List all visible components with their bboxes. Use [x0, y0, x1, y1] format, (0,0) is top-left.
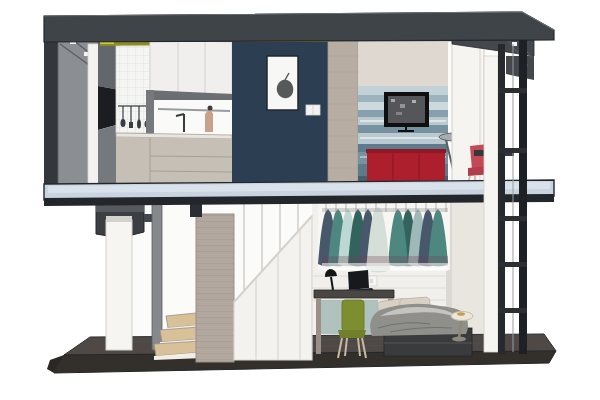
chair-seat	[338, 330, 366, 338]
rail-shadow	[322, 208, 448, 212]
utensil-head	[121, 119, 126, 127]
column-texture	[196, 214, 234, 362]
stair-column	[190, 204, 234, 362]
partition-column	[328, 40, 358, 198]
figure-top	[208, 106, 213, 111]
frame-rung	[498, 308, 527, 313]
mural-streak	[360, 137, 446, 139]
sideboard-top	[366, 149, 446, 153]
navy-accent-wall	[232, 42, 328, 200]
tall-white-panel	[484, 56, 498, 352]
kitchen-back-wall	[154, 100, 232, 133]
left-wall-panel	[106, 220, 132, 350]
upper-wall-band	[358, 42, 448, 88]
wall-edge	[44, 16, 58, 202]
column-top-bracket	[190, 204, 202, 217]
kitchen	[116, 40, 232, 196]
tv-speckle	[400, 104, 405, 108]
apartment-section-svg	[0, 0, 600, 400]
tile-backsplash	[116, 46, 150, 133]
frame-rung	[498, 148, 527, 153]
tv	[384, 92, 429, 131]
section-render-image	[0, 0, 600, 400]
chair-back	[342, 300, 364, 331]
gold-dish	[457, 312, 465, 316]
mid-floor-slab	[44, 180, 554, 206]
tv-speckle	[412, 100, 416, 103]
upper-floor	[44, 16, 534, 202]
left-wall-panel-cap	[106, 216, 132, 222]
frame-rung	[498, 262, 527, 267]
utensil-head	[129, 122, 133, 128]
upper-cabinets	[150, 40, 232, 94]
lower-floor	[47, 196, 556, 373]
tv-speckle	[396, 112, 402, 115]
outlet-socket	[370, 279, 373, 283]
structural-post	[152, 204, 162, 350]
roof-body	[44, 12, 554, 42]
hood-side	[146, 90, 154, 136]
clothes-rail	[318, 197, 450, 273]
laptop-screen	[348, 270, 369, 290]
roof-slab	[44, 12, 554, 42]
tv-speckle	[391, 99, 395, 102]
utensil-head	[137, 120, 141, 129]
frame-rung	[498, 88, 527, 93]
sideboard-body	[367, 153, 445, 183]
frame-rung	[498, 216, 527, 221]
hem-fade	[322, 263, 448, 271]
frame-post	[519, 40, 527, 354]
desk-leg-left	[316, 298, 321, 354]
column-face	[328, 40, 358, 198]
desk-top	[314, 290, 394, 298]
hanging-clothes	[318, 207, 448, 273]
stool-base	[452, 337, 466, 342]
